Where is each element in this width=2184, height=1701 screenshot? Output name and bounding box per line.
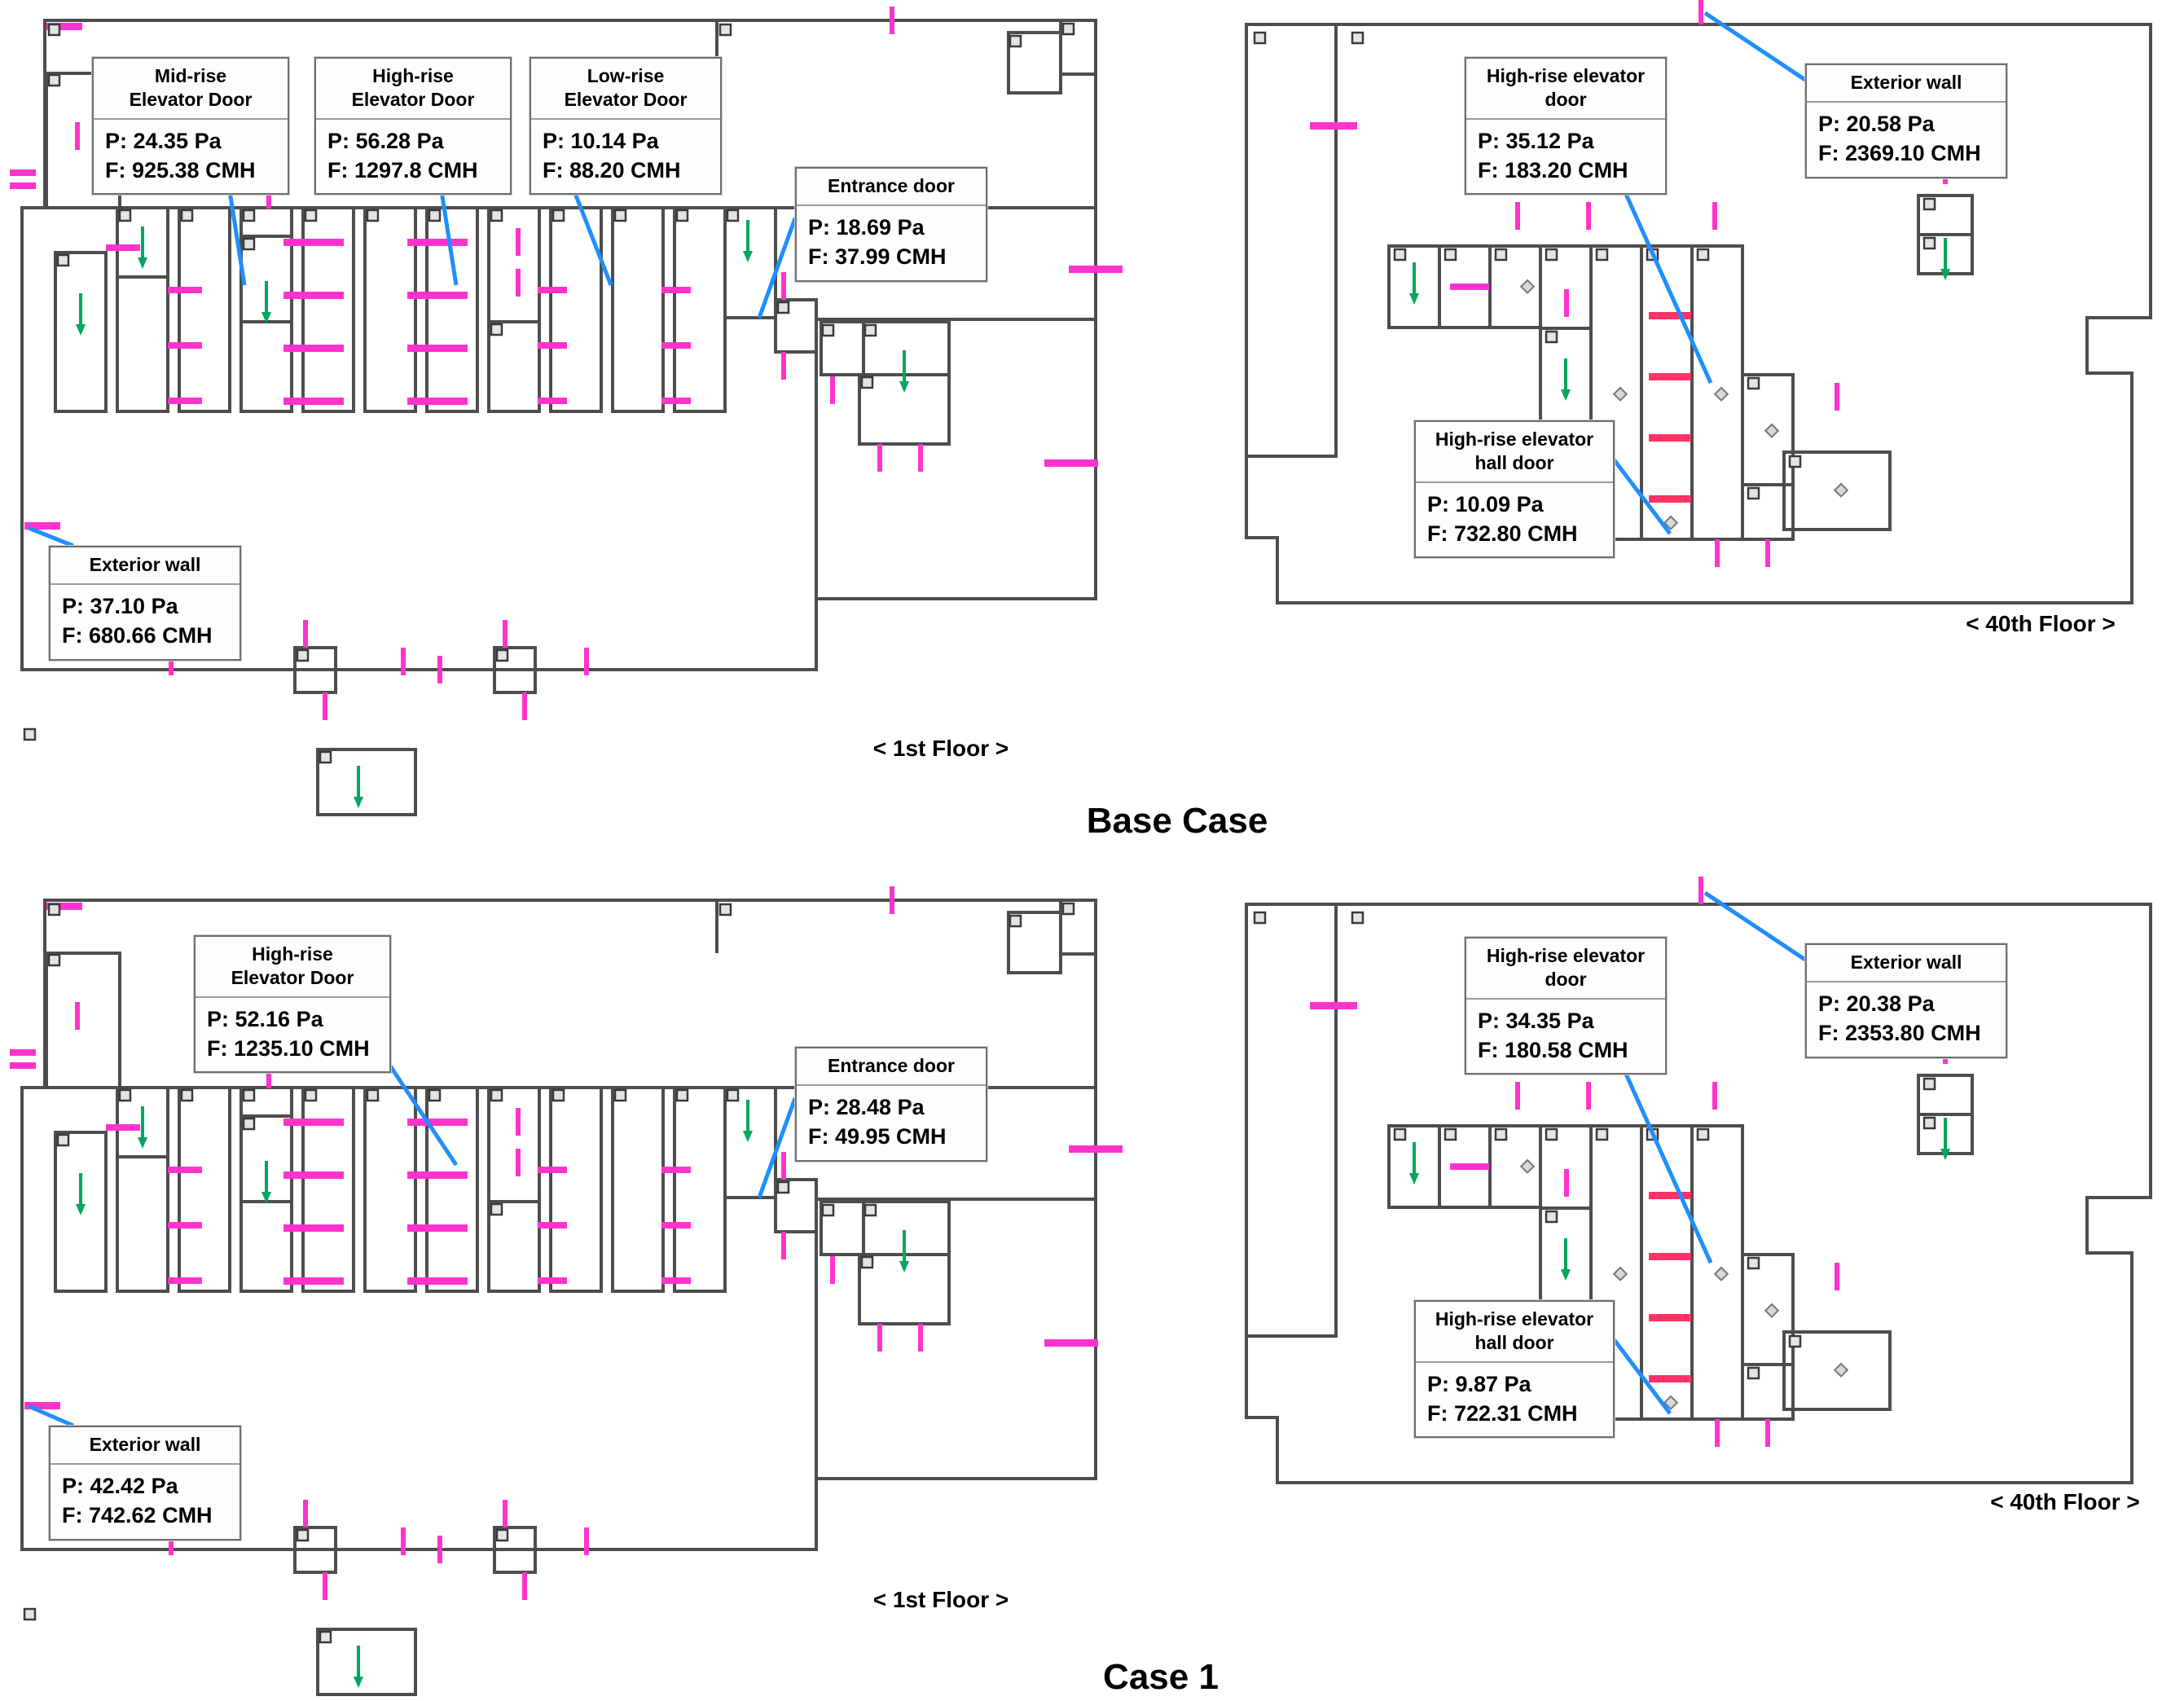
pressure-value: P: 52.16 Pa (207, 1004, 378, 1034)
flow-value: F: 722.31 CMH (1427, 1399, 1602, 1428)
callout-title-2: Elevator Door (539, 88, 712, 112)
case1-40th-floor-plan (1246, 877, 2151, 1483)
flow-value: F: 2369.10 CMH (1818, 138, 1994, 168)
callout-highrise-elevator-door-40: High-rise elevatordoor P: 35.12 PaF: 183… (1465, 57, 1667, 195)
label-40th-floor-case1: < 40th Floor > (1951, 1489, 2179, 1515)
airflow-diagram: Mid-riseElevator Door P: 24.35 PaF: 925.… (0, 0, 2184, 1701)
callout-title: Exterior wall (1815, 951, 1997, 974)
floor-plan-canvas (0, 0, 2184, 1701)
case1-1st-floor-plan (10, 886, 1123, 1694)
callout-title: Entrance door (805, 174, 978, 198)
pressure-value: P: 56.28 Pa (327, 126, 499, 156)
callout-title: Low-rise (539, 64, 712, 88)
callout-title: Mid-rise (102, 64, 279, 88)
callout-title: Exterior wall (59, 1433, 231, 1457)
pressure-value: P: 10.14 Pa (543, 126, 709, 156)
pressure-value: P: 34.35 Pa (1478, 1006, 1654, 1035)
callout-highrise-elevator-door: High-riseElevator Door P: 56.28 PaF: 129… (314, 57, 512, 195)
flow-value: F: 1235.10 CMH (207, 1034, 378, 1063)
flow-value: F: 732.80 CMH (1427, 519, 1602, 548)
callout-lowrise-elevator-door: Low-riseElevator Door P: 10.14 PaF: 88.2… (530, 57, 722, 195)
flow-value: F: 925.38 CMH (105, 156, 276, 185)
callout-highrise-elevator-hall-door-40: High-rise elevatorhall door P: 10.09 PaF… (1414, 420, 1615, 558)
pressure-value: P: 28.48 Pa (808, 1092, 974, 1122)
title-case-1: Case 1 (1022, 1657, 1299, 1698)
callout-title-2: door (1474, 88, 1657, 112)
pressure-value: P: 35.12 Pa (1478, 126, 1654, 156)
flow-value: F: 742.62 CMH (62, 1501, 228, 1530)
callout-exterior-wall-40: Exterior wall P: 20.58 PaF: 2369.10 CMH (1805, 64, 2007, 178)
callout-title-2: door (1474, 968, 1657, 991)
flow-value: F: 680.66 CMH (62, 621, 228, 650)
pressure-value: P: 10.09 Pa (1427, 490, 1602, 519)
flow-value: F: 1297.8 CMH (327, 156, 499, 185)
callout-title: Exterior wall (59, 553, 231, 577)
flow-value: F: 49.95 CMH (808, 1122, 974, 1151)
pressure-value: P: 20.38 Pa (1818, 989, 1994, 1018)
callout-title: High-rise elevator (1474, 944, 1657, 968)
label-1st-floor-base: < 1st Floor > (827, 736, 1055, 762)
flow-value: F: 183.20 CMH (1478, 156, 1654, 185)
callout-entrance-door: Entrance door P: 18.69 PaF: 37.99 CMH (795, 167, 987, 282)
callout-title: Exterior wall (1815, 71, 1997, 94)
callout-highrise-elevator-door-40-c1: High-rise elevatordoor P: 34.35 PaF: 180… (1465, 937, 1667, 1075)
callout-title: High-rise elevator (1424, 1308, 1605, 1331)
flow-value: F: 88.20 CMH (543, 156, 709, 185)
callout-title-2: Elevator Door (102, 88, 279, 112)
callout-highrise-elevator-door-c1: High-riseElevator Door P: 52.16 PaF: 123… (194, 935, 391, 1073)
callout-title: High-rise (324, 64, 502, 88)
pressure-value: P: 18.69 Pa (808, 213, 974, 242)
flow-value: F: 2353.80 CMH (1818, 1018, 1994, 1048)
base-case-40th-floor-plan (1246, 0, 2151, 603)
callout-title: High-rise elevator (1424, 428, 1605, 451)
label-40th-floor-base: < 40th Floor > (1927, 611, 2155, 637)
callout-highrise-elevator-hall-door-40-c1: High-rise elevatorhall door P: 9.87 PaF:… (1414, 1300, 1615, 1438)
pressure-value: P: 42.42 Pa (62, 1471, 228, 1501)
label-1st-floor-case1: < 1st Floor > (827, 1587, 1055, 1613)
callout-exterior-wall-40-c1: Exterior wall P: 20.38 PaF: 2353.80 CMH (1805, 943, 2007, 1058)
title-base-case: Base Case (1039, 801, 1316, 842)
pressure-value: P: 9.87 Pa (1427, 1369, 1602, 1399)
callout-exterior-wall: Exterior wall P: 37.10 PaF: 680.66 CMH (49, 546, 241, 661)
callout-entrance-door-c1: Entrance door P: 28.48 PaF: 49.95 CMH (795, 1047, 987, 1162)
callout-title-2: Elevator Door (324, 88, 502, 112)
callout-title-2: hall door (1424, 1331, 1605, 1355)
callout-midrise-elevator-door: Mid-riseElevator Door P: 24.35 PaF: 925.… (92, 57, 289, 195)
flow-value: F: 37.99 CMH (808, 242, 974, 271)
callout-exterior-wall-c1: Exterior wall P: 42.42 PaF: 742.62 CMH (49, 1426, 241, 1541)
flow-value: F: 180.58 CMH (1478, 1035, 1654, 1065)
callout-title: Entrance door (805, 1054, 978, 1078)
pressure-value: P: 37.10 Pa (62, 591, 228, 621)
callout-title-2: hall door (1424, 451, 1605, 475)
callout-title-2: Elevator Door (204, 966, 381, 990)
callout-title: High-rise elevator (1474, 64, 1657, 88)
callout-title: High-rise (204, 943, 381, 966)
pressure-value: P: 20.58 Pa (1818, 109, 1994, 138)
pressure-value: P: 24.35 Pa (105, 126, 276, 156)
